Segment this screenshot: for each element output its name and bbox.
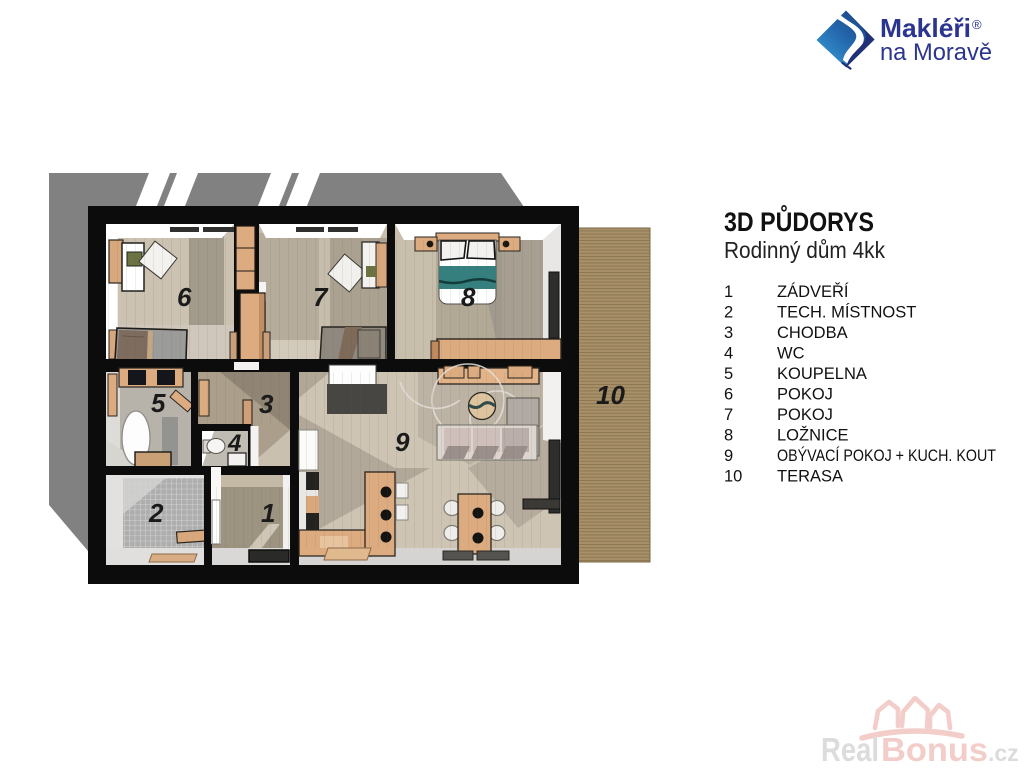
svg-text:POKOJ: POKOJ [777,386,833,404]
svg-text:TECH. MÍSTNOST: TECH. MÍSTNOST [777,303,916,322]
svg-text:2: 2 [148,498,164,528]
svg-text:CHODBA: CHODBA [777,324,848,342]
svg-text:4: 4 [724,345,733,363]
svg-text:6: 6 [724,386,733,404]
svg-text:3: 3 [724,324,733,342]
svg-text:®: ® [972,17,982,32]
svg-text:4: 4 [227,430,241,457]
svg-text:Bonus: Bonus [881,731,988,768]
svg-text:7: 7 [724,406,733,424]
svg-text:9: 9 [724,447,733,465]
svg-text:POKOJ: POKOJ [777,406,833,424]
svg-text:ZÁDVEŘÍ: ZÁDVEŘÍ [777,282,849,301]
svg-text:Rodinný dům 4kk: Rodinný dům 4kk [724,237,885,263]
svg-text:KOUPELNA: KOUPELNA [777,365,867,383]
svg-text:OBÝVACÍ POKOJ + KUCH. KOUT: OBÝVACÍ POKOJ + KUCH. KOUT [777,446,996,465]
svg-text:1: 1 [724,283,733,301]
svg-text:5: 5 [724,365,733,383]
svg-text:8: 8 [724,427,733,445]
svg-text:.cz: .cz [988,740,1019,766]
svg-text:LOŽNICE: LOŽNICE [777,426,849,445]
svg-text:10: 10 [724,468,742,486]
svg-text:5: 5 [151,388,166,418]
svg-text:na Moravě: na Moravě [880,39,992,66]
svg-text:Real: Real [821,731,879,768]
svg-text:10: 10 [596,380,625,410]
svg-text:2: 2 [724,304,733,322]
svg-text:3D PŮDORYS: 3D PŮDORYS [724,204,874,237]
svg-text:WC: WC [777,345,805,363]
svg-text:TERASA: TERASA [777,468,843,486]
